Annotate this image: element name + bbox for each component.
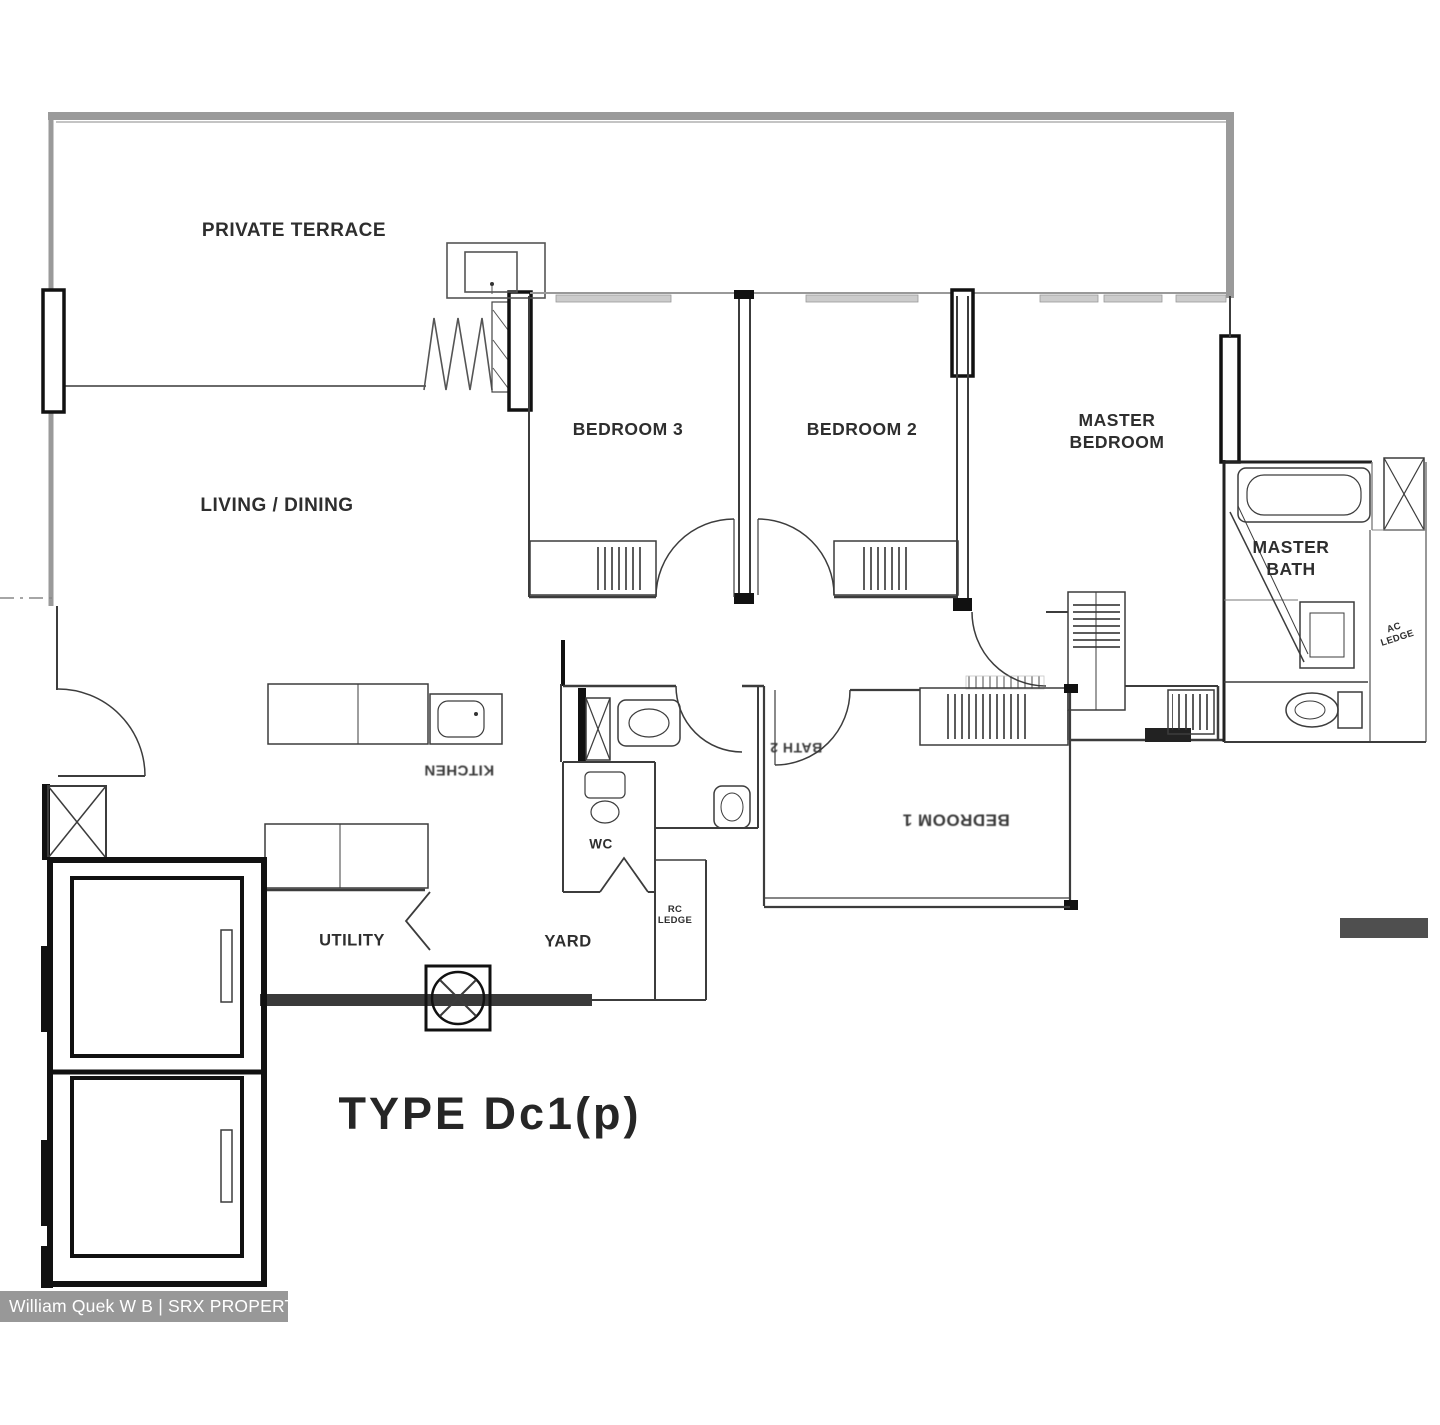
plan-type-title: TYPE Dc1(p) [338, 1086, 641, 1142]
kitchen-counter-bottom [265, 824, 428, 888]
bath2-toilet-icon [618, 700, 680, 746]
label-bedroom2: BEDROOM 2 [807, 419, 917, 441]
label-bedroom3: BEDROOM 3 [573, 419, 683, 441]
bath2-basin-icon [714, 786, 750, 828]
wc-toilet-icon [585, 772, 625, 823]
label-utility: UTILITY [319, 931, 385, 952]
label-wc: WC [589, 837, 613, 854]
label-bath2: BATH 2 [770, 738, 823, 756]
kitchen-counter-top [268, 684, 428, 744]
boundary-bar [1340, 918, 1428, 938]
label-yard: YARD [544, 932, 591, 953]
ac-ledge-hatch-icon [1384, 458, 1424, 530]
shower-icon [1230, 506, 1354, 668]
wc-folding-door-icon [600, 858, 648, 892]
bedroom-walls [529, 290, 1230, 742]
label-living-dining: LIVING / DINING [200, 494, 353, 518]
entry-door-arc [58, 689, 145, 776]
outer-walls [48, 113, 1234, 606]
accordion-door-icon [424, 318, 492, 390]
watermark: William Quek W B | SRX PROPERTY [0, 1291, 288, 1322]
entry-lifts [0, 598, 264, 1288]
label-master-bedroom: MASTER BEDROOM [1070, 410, 1165, 454]
label-rc-ledge: RC LEDGE [658, 905, 692, 927]
lift-car-1-icon [72, 878, 242, 1056]
riser-x-box-icon [48, 786, 106, 858]
riser-shaft-icon [586, 698, 610, 760]
terrace-elements [57, 243, 545, 410]
label-private-terrace: PRIVATE TERRACE [202, 219, 386, 243]
bedroom1-room [764, 684, 1078, 910]
bath2 [563, 640, 764, 828]
bathtub-icon [1238, 468, 1370, 522]
window-band [530, 293, 1228, 302]
lift-car-2-icon [72, 1078, 242, 1256]
utility-folding-door-icon [406, 892, 430, 950]
door-panel [509, 292, 531, 410]
master-bath [1224, 458, 1428, 938]
master-toilet-icon [1286, 692, 1362, 728]
terrace-box-icon [447, 243, 545, 298]
label-master-bath: MASTER BATH [1253, 537, 1330, 581]
floor-plan: PRIVATE TERRACE LIVING / DINING BEDROOM … [0, 0, 1440, 1425]
kitchen-sink-icon [430, 694, 502, 744]
floor-plan-drawing [0, 0, 1440, 1425]
wc-room [563, 762, 655, 1000]
kitchen-area [265, 684, 561, 950]
label-bedroom1: BEDROOM 1 [902, 809, 1009, 830]
label-kitchen: KITCHEN [424, 760, 494, 779]
wardrobes [530, 541, 958, 595]
